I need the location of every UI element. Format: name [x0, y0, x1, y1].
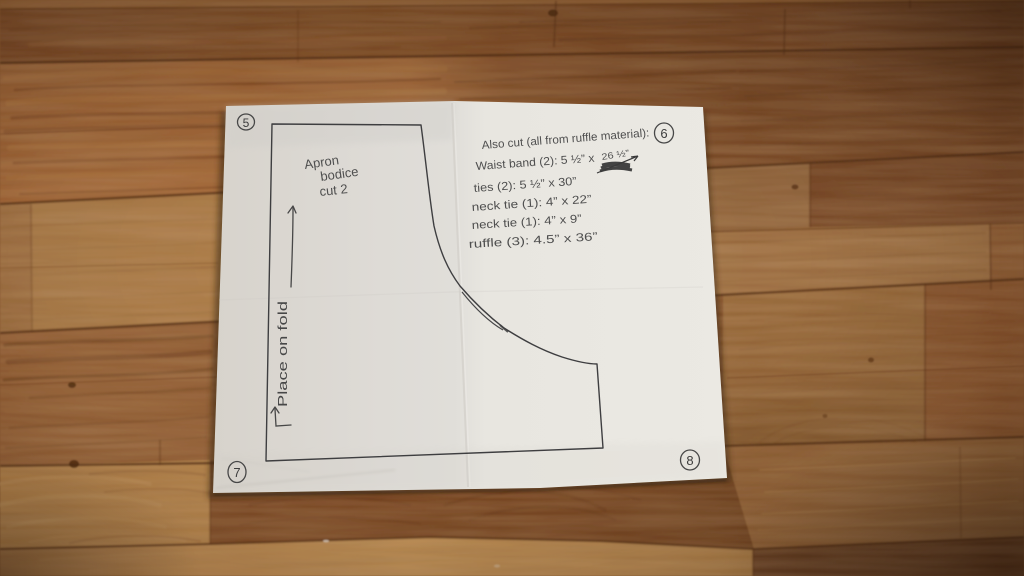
svg-text:6: 6: [660, 126, 667, 141]
svg-text:5: 5: [243, 116, 250, 130]
svg-text:7: 7: [233, 465, 240, 480]
svg-text:8: 8: [686, 453, 693, 468]
svg-text:cut 2: cut 2: [319, 181, 349, 199]
svg-text:Place on fold: Place on fold: [276, 301, 290, 407]
